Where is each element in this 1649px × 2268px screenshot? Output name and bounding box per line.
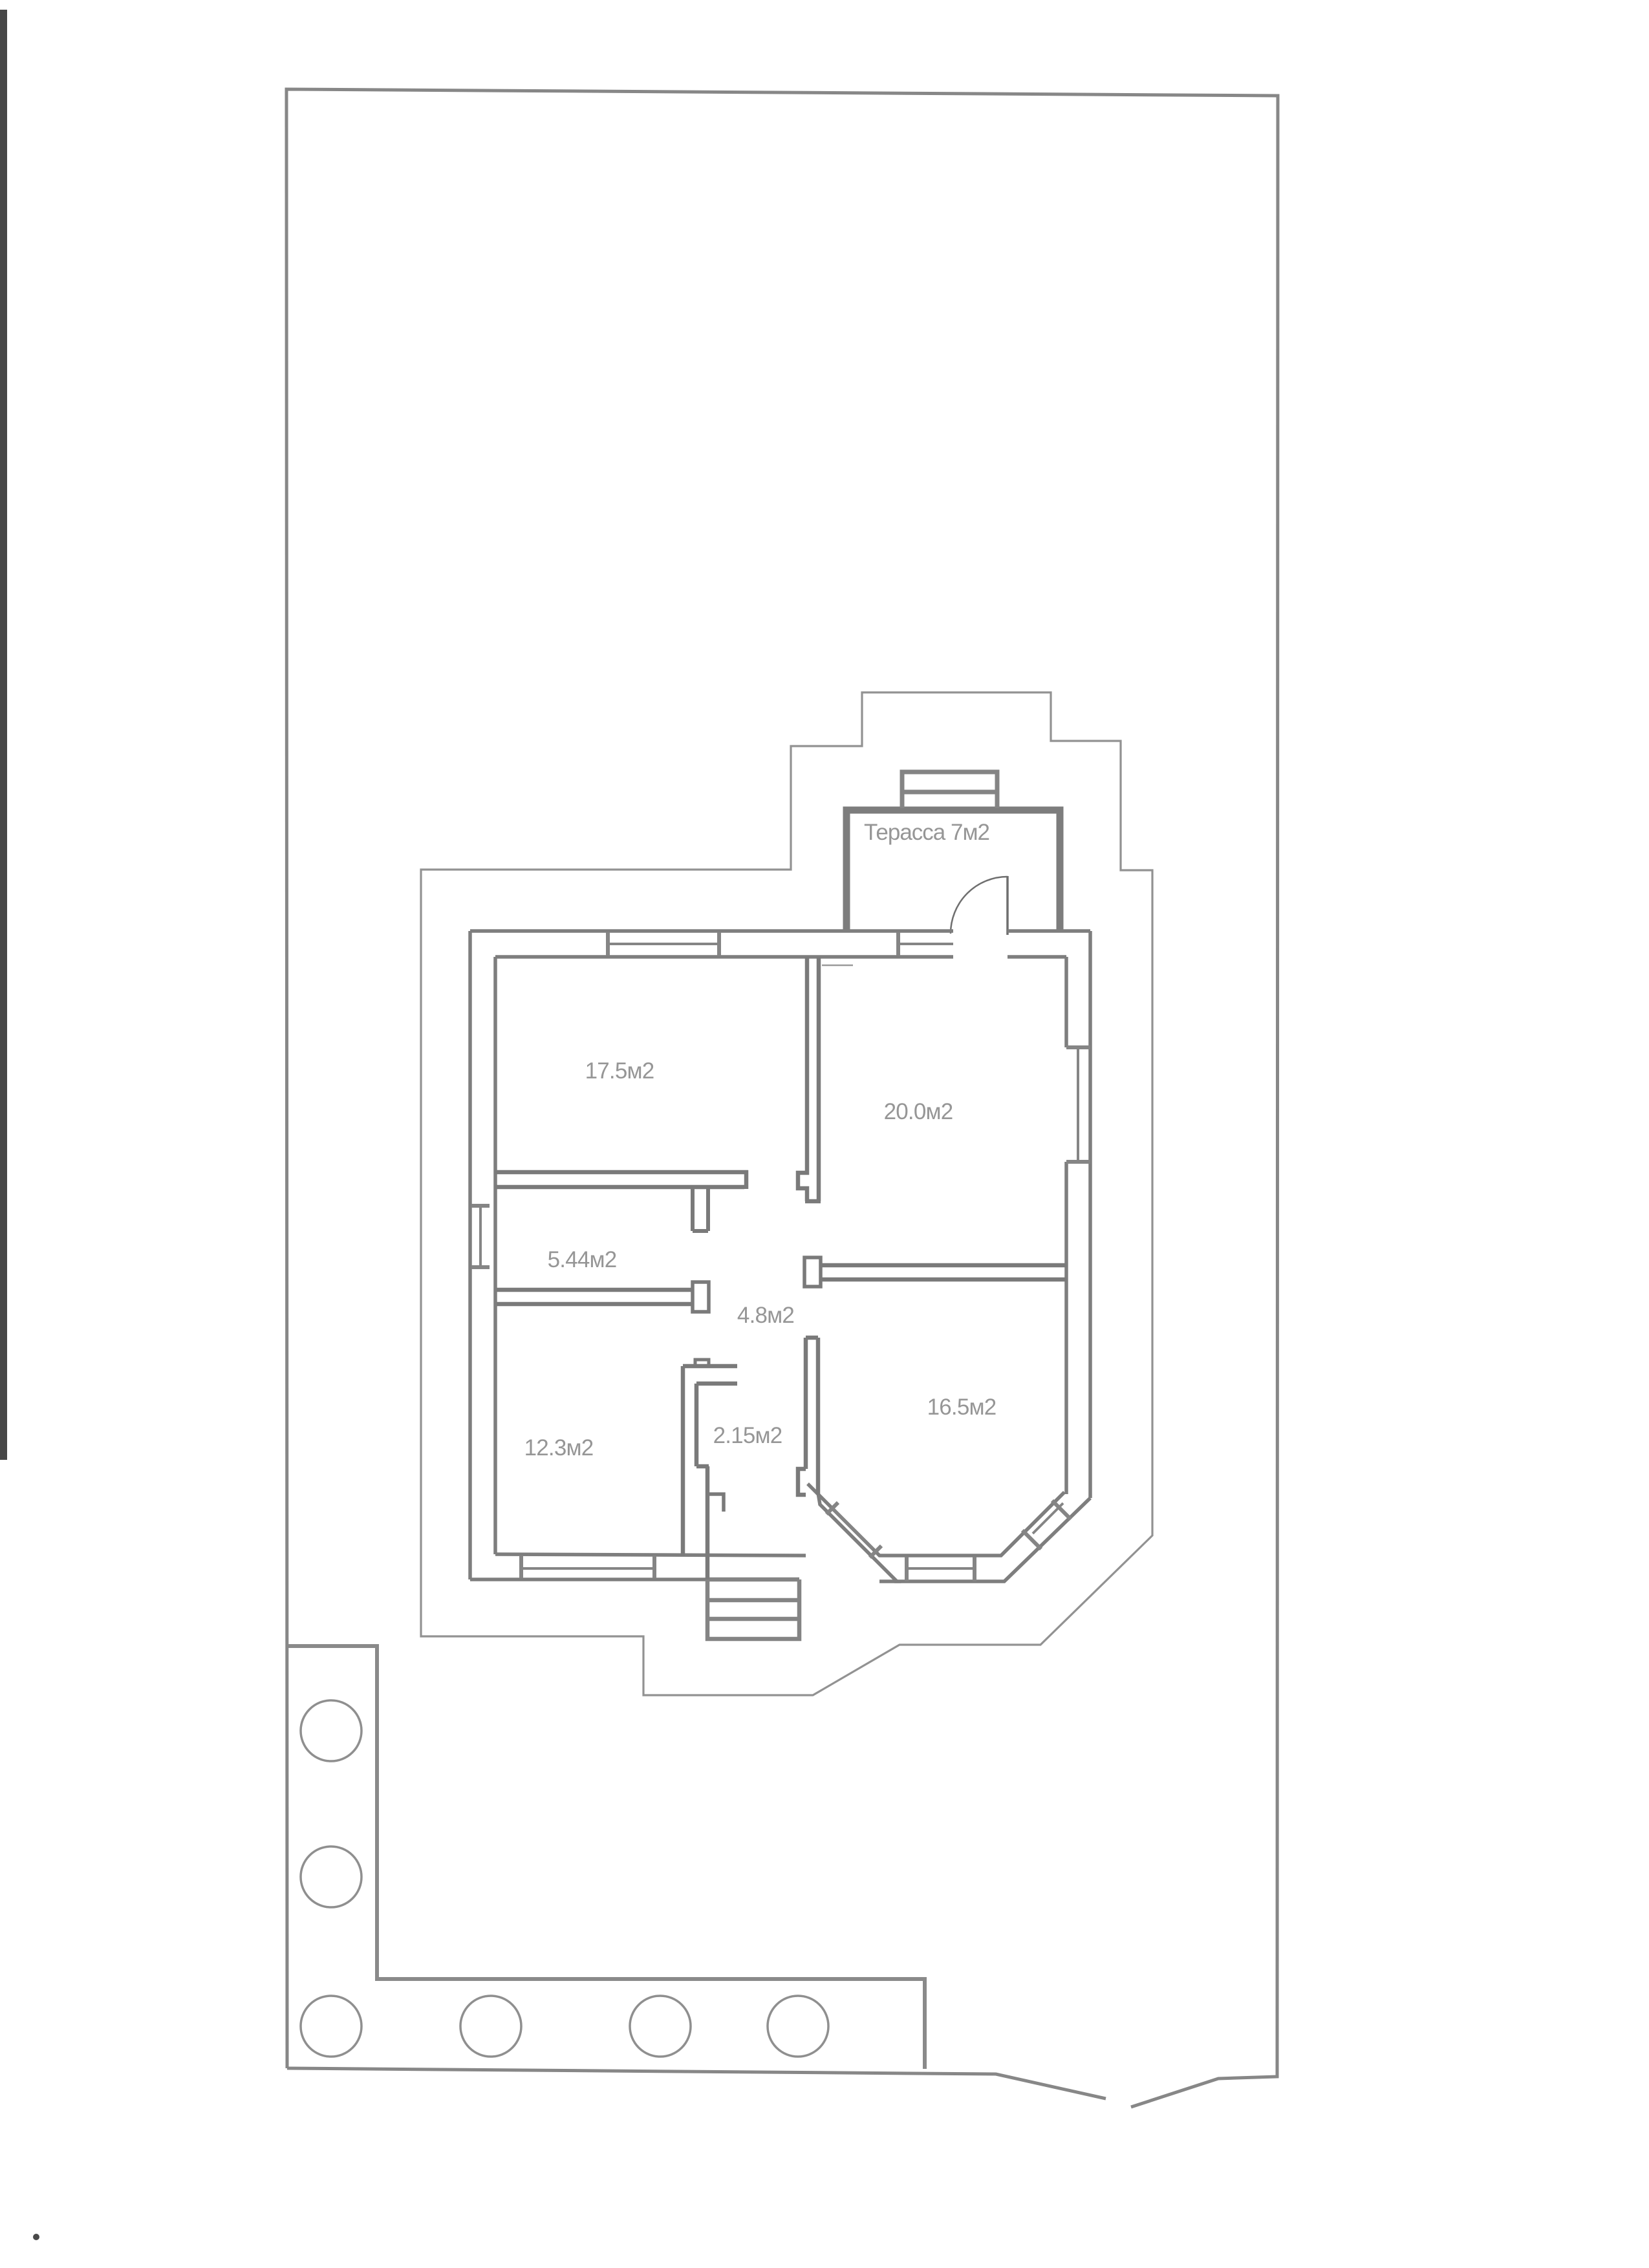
svg-text:16.5м2: 16.5м2 bbox=[927, 1395, 997, 1420]
svg-text:20.0м2: 20.0м2 bbox=[884, 1099, 953, 1124]
svg-text:12.3м2: 12.3м2 bbox=[524, 1435, 594, 1460]
svg-text:Терасса 7м2: Терасса 7м2 bbox=[864, 820, 989, 845]
svg-text:17.5м2: 17.5м2 bbox=[585, 1058, 654, 1084]
svg-text:5.44м2: 5.44м2 bbox=[548, 1247, 617, 1272]
svg-text:2.15м2: 2.15м2 bbox=[713, 1423, 782, 1448]
svg-text:4.8м2: 4.8м2 bbox=[737, 1303, 794, 1328]
